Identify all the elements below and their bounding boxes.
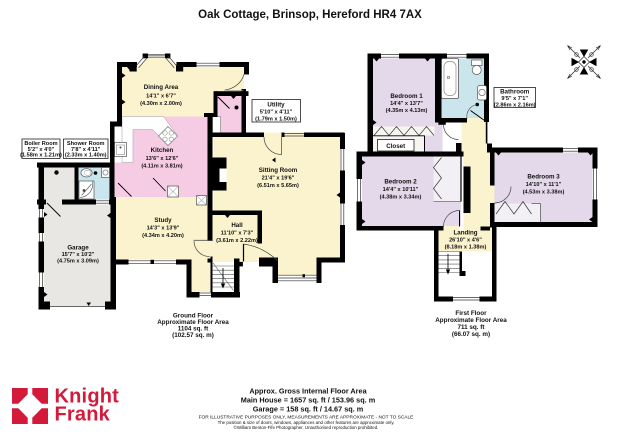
svg-text:15'7" x 10'2": 15'7" x 10'2" (62, 252, 95, 258)
svg-text:14'4" x 10'11": 14'4" x 10'11" (383, 187, 419, 193)
svg-text:Study: Study (154, 217, 172, 224)
svg-text:14'3" x 13'9": 14'3" x 13'9" (147, 226, 180, 232)
svg-text:Kitchen: Kitchen (151, 147, 174, 154)
svg-text:Sitting Room: Sitting Room (259, 167, 298, 174)
svg-text:Landing: Landing (453, 230, 477, 237)
svg-text:711 sq. ft: 711 sq. ft (458, 324, 486, 331)
svg-text:(66.07 sq. m): (66.07 sq. m) (452, 331, 490, 338)
svg-text:11'10" x 7'3": 11'10" x 7'3" (221, 231, 254, 237)
svg-text:(2.33m x 1.40m): (2.33m x 1.40m) (65, 153, 107, 159)
svg-text:©William Benton-Fife Photograp: ©William Benton-Fife Photographer. Unaut… (234, 425, 379, 430)
svg-text:Closet: Closet (386, 143, 405, 150)
svg-text:Main House = 1657 sq. ft / 153: Main House = 1657 sq. ft / 153.96 sq. m (241, 396, 376, 405)
svg-text:(4.75m x 3.09m): (4.75m x 3.09m) (57, 259, 99, 265)
svg-text:(6.51m x 5.65m): (6.51m x 5.65m) (257, 183, 299, 189)
svg-text:21'4" x 19'6": 21'4" x 19'6" (262, 176, 295, 182)
svg-text:Frank: Frank (55, 404, 111, 426)
svg-text:(4.35m x 4.13m): (4.35m x 4.13m) (386, 108, 428, 114)
svg-text:13'6" x 12'6": 13'6" x 12'6" (146, 156, 179, 162)
svg-text:Garage = 158 sq. ft / 14.67 sq: Garage = 158 sq. ft / 14.67 sq. m (253, 405, 364, 414)
svg-text:5'10" x 4'11": 5'10" x 4'11" (260, 110, 293, 116)
svg-text:Bedroom 3: Bedroom 3 (527, 174, 560, 181)
svg-text:26'10" x 4'6": 26'10" x 4'6" (449, 238, 482, 244)
svg-text:Approx. Gross Internal Floor A: Approx. Gross Internal Floor Area (249, 387, 367, 396)
svg-text:Bedroom 2: Bedroom 2 (384, 179, 417, 186)
svg-text:Dining Area: Dining Area (144, 84, 179, 91)
svg-text:(2.86m x 2.16m): (2.86m x 2.16m) (494, 102, 536, 108)
svg-text:Oak Cottage, Brinsop, Hereford: Oak Cottage, Brinsop, Hereford HR4 7AX (198, 9, 422, 21)
svg-text:(4.34m x 4.20m): (4.34m x 4.20m) (142, 233, 184, 239)
svg-text:Bedroom 1: Bedroom 1 (390, 93, 423, 100)
svg-text:Approximate Floor Area: Approximate Floor Area (435, 317, 507, 324)
svg-text:(4.53m x 3.38m): (4.53m x 3.38m) (523, 190, 565, 196)
svg-text:9'5" x 7'1": 9'5" x 7'1" (501, 96, 528, 102)
svg-text:(8.18m x 1.38m): (8.18m x 1.38m) (445, 245, 487, 251)
svg-text:(1.58m x 1.21m): (1.58m x 1.21m) (20, 153, 62, 159)
svg-text:14'1" x 6'7": 14'1" x 6'7" (146, 94, 176, 100)
svg-text:Garage: Garage (67, 245, 89, 252)
svg-text:(4.38m x 3.34m): (4.38m x 3.34m) (380, 195, 422, 201)
svg-text:Utility: Utility (267, 102, 285, 109)
svg-text:(1.79m x 1.50m): (1.79m x 1.50m) (255, 117, 297, 123)
svg-text:14'4" x 13'7": 14'4" x 13'7" (390, 101, 423, 107)
svg-text:14'10" x 11'1": 14'10" x 11'1" (526, 182, 562, 188)
svg-text:Hall: Hall (231, 222, 243, 229)
svg-text:(3.61m x 2.22m): (3.61m x 2.22m) (216, 238, 258, 244)
svg-text:(102.57 sq. m): (102.57 sq. m) (172, 332, 214, 339)
svg-text:Bathroom: Bathroom (500, 89, 530, 96)
svg-text:(4.30m x 2.00m): (4.30m x 2.00m) (140, 101, 182, 107)
svg-text:(4.11m x 3.81m): (4.11m x 3.81m) (141, 164, 182, 170)
svg-text:First Floor: First Floor (455, 310, 487, 317)
